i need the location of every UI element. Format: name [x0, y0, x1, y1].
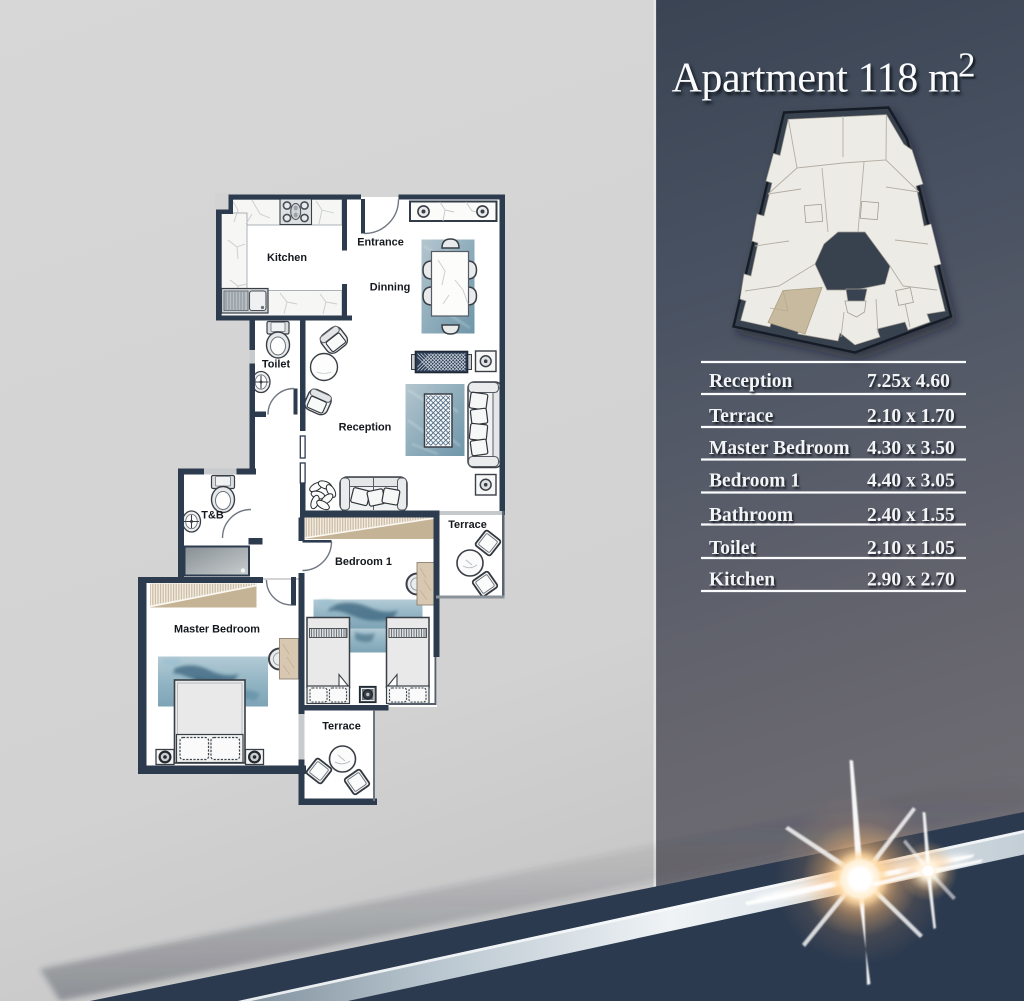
svg-text:Reception: Reception: [339, 422, 392, 434]
svg-text:T&B: T&B: [201, 510, 224, 522]
svg-text:Toilet: Toilet: [262, 359, 291, 371]
svg-text:2.10 x 1.05: 2.10 x 1.05: [867, 538, 955, 559]
svg-text:Bathroom: Bathroom: [709, 505, 793, 526]
svg-text:2.90 x 2.70: 2.90 x 2.70: [867, 570, 955, 591]
svg-text:Kitchen: Kitchen: [709, 570, 775, 591]
svg-text:7.25x 4.60: 7.25x 4.60: [867, 371, 950, 392]
svg-text:Terrace: Terrace: [322, 721, 361, 733]
svg-text:Apartment 118 m: Apartment 118 m: [672, 56, 961, 102]
svg-text:Master Bedroom: Master Bedroom: [709, 438, 850, 459]
svg-text:Bedroom 1: Bedroom 1: [709, 471, 800, 492]
svg-text:4.30 x 3.50: 4.30 x 3.50: [867, 438, 955, 459]
svg-text:2.40 x 1.55: 2.40 x 1.55: [867, 505, 955, 526]
svg-text:Bedroom 1: Bedroom 1: [335, 556, 392, 568]
svg-text:2.10 x 1.70: 2.10 x 1.70: [867, 406, 955, 427]
svg-text:Reception: Reception: [709, 371, 793, 392]
svg-text:Terrace: Terrace: [709, 406, 774, 427]
svg-text:Entrance: Entrance: [357, 237, 404, 249]
svg-text:Kitchen: Kitchen: [267, 252, 307, 264]
svg-text:4.40 x 3.05: 4.40 x 3.05: [867, 471, 955, 492]
svg-text:Master Bedroom: Master Bedroom: [174, 624, 260, 636]
svg-text:Toilet: Toilet: [709, 538, 756, 559]
svg-text:Dinning: Dinning: [370, 282, 411, 294]
svg-text:Terrace: Terrace: [448, 519, 487, 531]
svg-text:2: 2: [958, 46, 976, 85]
